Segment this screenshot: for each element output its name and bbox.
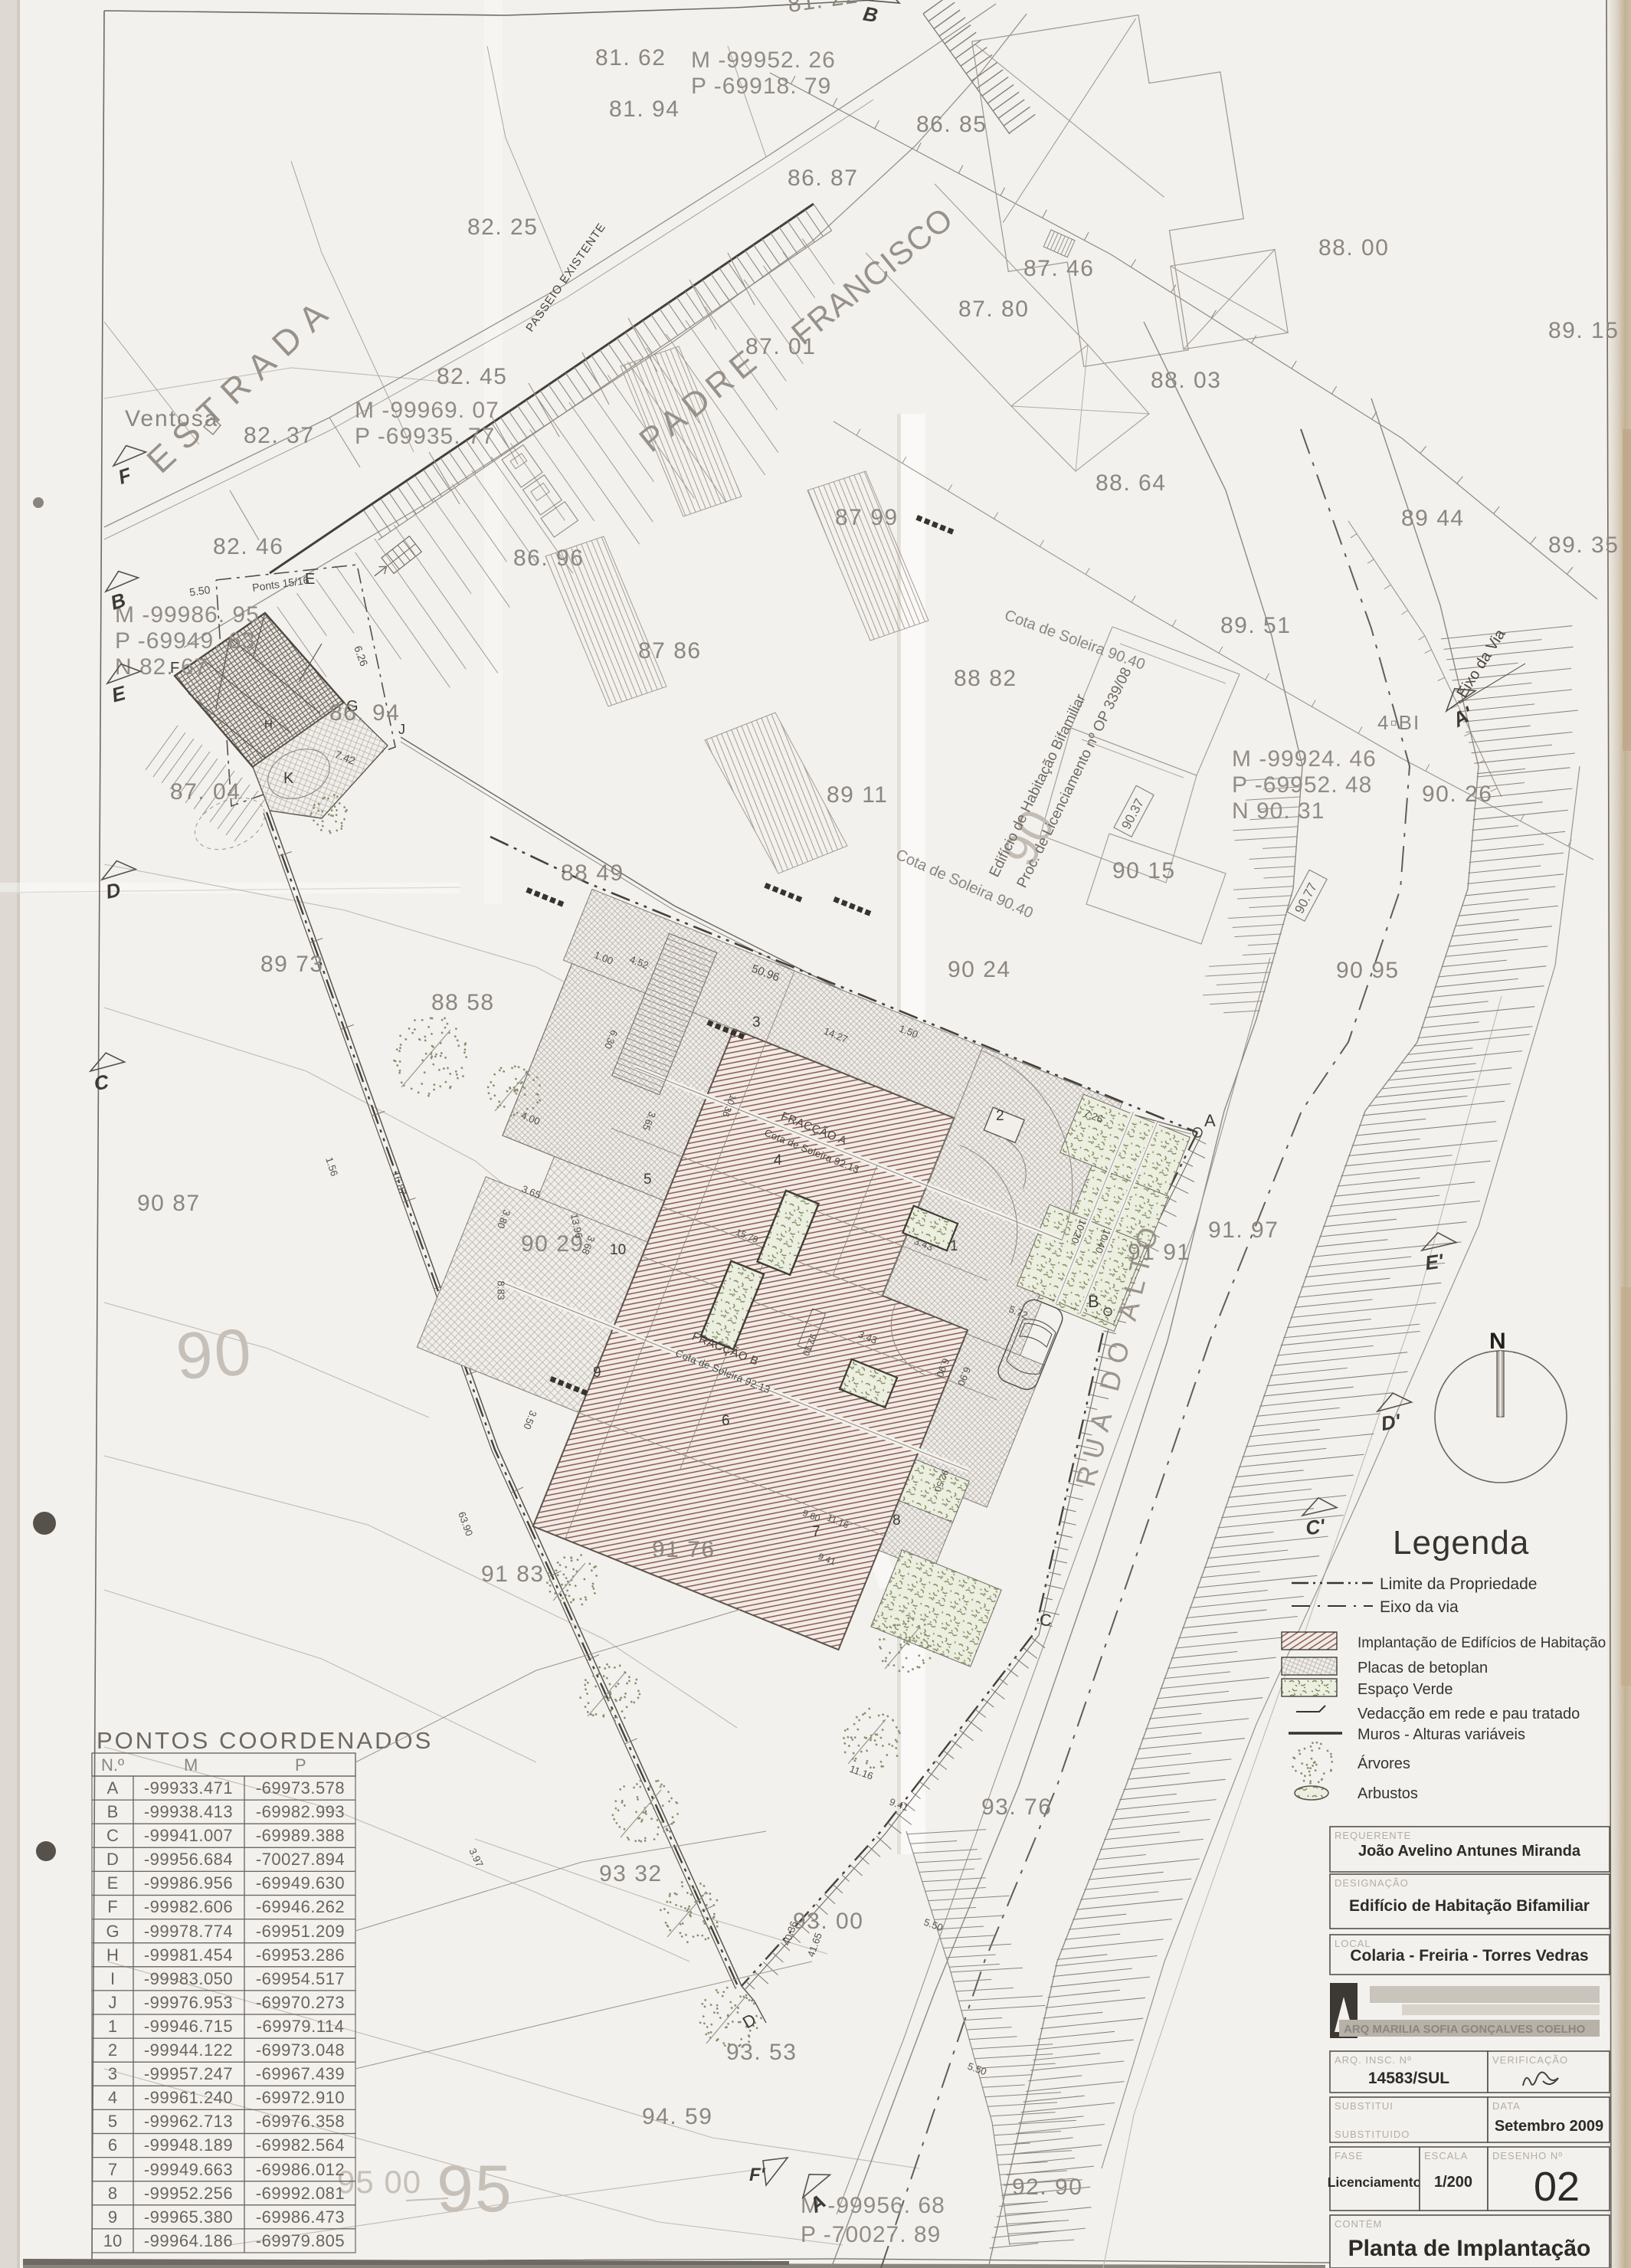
svg-text:90 24: 90 24	[948, 957, 1011, 982]
svg-text:-70027.894: -70027.894	[256, 1850, 345, 1869]
svg-text:P -70027. 89: P -70027. 89	[801, 2222, 941, 2247]
svg-text:93 32: 93 32	[599, 1861, 663, 1886]
svg-text:P -69918. 79: P -69918. 79	[691, 74, 831, 99]
svg-text:ARQ. INSC. Nº: ARQ. INSC. Nº	[1335, 2054, 1412, 2066]
svg-text:-69982.993: -69982.993	[256, 1802, 345, 1821]
svg-text:90. 26: 90. 26	[1422, 782, 1492, 807]
svg-text:Legenda: Legenda	[1393, 1524, 1529, 1562]
svg-text:P -69949. 63: P -69949. 63	[115, 628, 255, 654]
svg-text:DESIGNAÇÃO: DESIGNAÇÃO	[1335, 1877, 1409, 1889]
svg-text:A: A	[1204, 1111, 1216, 1130]
svg-text:93. 76: 93. 76	[981, 1794, 1052, 1820]
svg-text:VERIFICAÇÃO: VERIFICAÇÃO	[1492, 2054, 1568, 2066]
svg-text:3: 3	[752, 1014, 761, 1031]
svg-text:-99949.663: -99949.663	[144, 2160, 233, 2179]
svg-text:Colaria - Freiria - Torres Ved: Colaria - Freiria - Torres Vedras	[1350, 1947, 1588, 1965]
svg-text:FASE: FASE	[1335, 2150, 1363, 2161]
svg-text:Muros - Alturas variáveis: Muros - Alturas variáveis	[1358, 1726, 1525, 1743]
svg-text:4: 4	[774, 1152, 782, 1168]
svg-text:86. 96: 86. 96	[513, 546, 584, 571]
svg-text:I: I	[110, 1969, 115, 1988]
svg-text:B: B	[1088, 1292, 1099, 1311]
svg-text:9: 9	[108, 2207, 117, 2227]
svg-text:-99982.606: -99982.606	[144, 1897, 233, 1916]
svg-text:14583/SUL: 14583/SUL	[1368, 2070, 1449, 2087]
svg-text:91. 97: 91. 97	[1208, 1218, 1279, 1243]
svg-text:M -99924. 46: M -99924. 46	[1232, 746, 1377, 772]
svg-text:Arbustos: Arbustos	[1358, 1785, 1418, 1802]
svg-text:N 90. 31: N 90. 31	[1232, 798, 1325, 824]
svg-text:DESENHO Nº: DESENHO Nº	[1492, 2150, 1563, 2161]
svg-text:-69986.012: -69986.012	[256, 2160, 345, 2179]
svg-text:-69992.081: -69992.081	[256, 2184, 345, 2203]
svg-text:Planta de Implantação: Planta de Implantação	[1348, 2236, 1591, 2261]
svg-text:N: N	[1489, 1329, 1506, 1354]
svg-text:8: 8	[108, 2184, 117, 2203]
svg-text:88. 64: 88. 64	[1096, 470, 1166, 496]
svg-text:90: 90	[174, 1315, 255, 1394]
svg-text:86. 87: 86. 87	[788, 166, 858, 191]
svg-text:82. 37: 82. 37	[244, 423, 314, 448]
svg-text:82. 25: 82. 25	[467, 215, 538, 240]
svg-text:89 44: 89 44	[1401, 506, 1465, 531]
svg-text:Eixo da via: Eixo da via	[1380, 1598, 1459, 1616]
svg-text:-69989.388: -69989.388	[256, 1826, 345, 1845]
svg-text:P: P	[295, 1755, 306, 1775]
svg-text:88. 03: 88. 03	[1151, 368, 1221, 393]
svg-text:N.º: N.º	[101, 1755, 124, 1775]
svg-text:M -99952. 26: M -99952. 26	[691, 48, 836, 73]
svg-text:Edifício de Habitação Bifamili: Edifício de Habitação Bifamiliar	[1349, 1897, 1590, 1915]
svg-text:Implantação de Edifícios de Ha: Implantação de Edifícios de Habitação	[1358, 1635, 1606, 1651]
svg-text:1: 1	[108, 2017, 117, 2036]
svg-text:REQUERENTE: REQUERENTE	[1335, 1830, 1411, 1841]
svg-text:8.83: 8.83	[496, 1280, 507, 1300]
svg-text:82. 46: 82. 46	[213, 534, 283, 559]
svg-text:94. 59: 94. 59	[642, 2104, 712, 2129]
svg-text:2: 2	[996, 1108, 1004, 1124]
svg-text:M -99986. 95: M -99986. 95	[115, 602, 260, 628]
svg-text:CONTÉM: CONTÉM	[1335, 2218, 1382, 2230]
svg-text:P -69952. 48: P -69952. 48	[1232, 772, 1372, 798]
svg-text:-99961.240: -99961.240	[144, 2088, 233, 2107]
svg-text:A: A	[107, 1778, 119, 1798]
svg-text:93. 00: 93. 00	[793, 1909, 863, 1934]
svg-text:H: H	[106, 1945, 119, 1965]
svg-text:Setembro 2009: Setembro 2009	[1495, 2118, 1603, 2135]
svg-text:K: K	[283, 770, 294, 787]
svg-text:J: J	[109, 1993, 117, 2012]
svg-text:-99976.953: -99976.953	[144, 1993, 233, 2012]
svg-text:-69967.439: -69967.439	[256, 2064, 345, 2083]
svg-text:DATA: DATA	[1492, 2100, 1521, 2112]
svg-text:5: 5	[108, 2112, 117, 2131]
svg-text:89 73: 89 73	[260, 952, 324, 977]
svg-text:-69953.286: -69953.286	[256, 1945, 345, 1965]
svg-text:-99964.186: -99964.186	[144, 2231, 233, 2250]
svg-text:-99938.413: -99938.413	[144, 1802, 233, 1821]
svg-text:-99952.256: -99952.256	[144, 2184, 233, 2203]
svg-text:-99957.247: -99957.247	[144, 2064, 233, 2083]
svg-text:87. 80: 87. 80	[958, 297, 1029, 322]
svg-text:-69979.114: -69979.114	[257, 2017, 345, 2036]
svg-text:4: 4	[108, 2088, 117, 2107]
svg-text:95: 95	[437, 2152, 513, 2226]
svg-text:SUBSTITUI: SUBSTITUI	[1335, 2100, 1394, 2112]
svg-text:10: 10	[103, 2231, 122, 2250]
svg-text:89. 51: 89. 51	[1220, 613, 1291, 638]
svg-text:81. 62: 81. 62	[595, 45, 666, 70]
svg-text:8: 8	[892, 1513, 901, 1529]
svg-text:91 83: 91 83	[481, 1562, 545, 1587]
svg-text:Espaço Verde: Espaço Verde	[1358, 1681, 1453, 1698]
svg-text:89. 35: 89. 35	[1548, 533, 1619, 558]
svg-text:7: 7	[812, 1524, 820, 1540]
svg-text:88 49: 88 49	[561, 860, 624, 886]
svg-text:89. 15: 89. 15	[1548, 318, 1619, 343]
svg-text:86. 94: 86. 94	[329, 700, 400, 726]
svg-text:SUBSTITUIDO: SUBSTITUIDO	[1335, 2129, 1410, 2140]
svg-text:91 91: 91 91	[1128, 1240, 1191, 1265]
svg-text:-99983.050: -99983.050	[144, 1969, 233, 1988]
svg-text:M -99969. 07: M -99969. 07	[355, 398, 499, 423]
svg-text:-99941.007: -99941.007	[144, 1826, 233, 1845]
svg-text:-69986.473: -69986.473	[256, 2207, 345, 2227]
svg-text:88. 00: 88. 00	[1318, 235, 1389, 261]
svg-text:-69951.209: -69951.209	[256, 1922, 345, 1941]
svg-text:C': C'	[1304, 1514, 1327, 1539]
svg-text:-69946.262: -69946.262	[256, 1897, 345, 1916]
svg-text:7: 7	[108, 2160, 117, 2179]
svg-text:90 87: 90 87	[137, 1191, 201, 1216]
svg-text:9: 9	[593, 1365, 601, 1381]
svg-text:P -69935. 77: P -69935. 77	[355, 424, 495, 449]
svg-text:F': F'	[749, 2165, 766, 2185]
svg-text:-69982.564: -69982.564	[256, 2135, 345, 2155]
svg-text:2: 2	[108, 2040, 117, 2060]
svg-text:-99978.774: -99978.774	[144, 1922, 233, 1941]
svg-text:6: 6	[108, 2135, 117, 2155]
svg-text:Licenciamento: Licenciamento	[1328, 2175, 1422, 2190]
svg-text:-99948.189: -99948.189	[144, 2135, 233, 2155]
svg-text:88 82: 88 82	[954, 666, 1017, 691]
svg-text:-99986.956: -99986.956	[144, 1873, 233, 1893]
svg-text:-99956.684: -99956.684	[144, 1850, 233, 1869]
svg-text:88 58: 88 58	[431, 990, 495, 1015]
svg-text:Árvores: Árvores	[1358, 1755, 1410, 1772]
svg-text:1/200: 1/200	[1434, 2174, 1472, 2191]
svg-text:89 11: 89 11	[827, 782, 888, 808]
svg-text:81. 94: 81. 94	[609, 97, 680, 122]
svg-text:Limite da Propriedade: Limite da Propriedade	[1380, 1575, 1537, 1593]
svg-text:M: M	[184, 1755, 198, 1775]
svg-text:91 76: 91 76	[652, 1537, 716, 1562]
svg-text:-69949.630: -69949.630	[256, 1873, 345, 1893]
svg-text:82. 45: 82. 45	[437, 364, 507, 389]
svg-text:-99933.471: -99933.471	[144, 1778, 233, 1798]
svg-text:10: 10	[610, 1242, 626, 1258]
svg-text:-69972.910: -69972.910	[256, 2088, 345, 2107]
svg-text:-69979.805: -69979.805	[256, 2231, 345, 2250]
svg-text:C: C	[106, 1826, 119, 1845]
svg-text:D: D	[106, 1850, 119, 1869]
svg-text:86. 85: 86. 85	[916, 112, 987, 137]
svg-text:-99944.122: -99944.122	[144, 2040, 233, 2060]
svg-text:Vedacção em rede e pau tratado: Vedacção em rede e pau tratado	[1358, 1706, 1580, 1722]
svg-text:F: F	[107, 1897, 117, 1916]
svg-text:87 86: 87 86	[638, 638, 702, 664]
svg-text:-69973.578: -69973.578	[256, 1778, 345, 1798]
svg-text:H: H	[264, 718, 273, 731]
svg-text:João Avelino Antunes Miranda: João Avelino Antunes Miranda	[1358, 1843, 1581, 1860]
svg-text:-69973.048: -69973.048	[256, 2040, 345, 2060]
svg-text:4▫BI: 4▫BI	[1377, 711, 1420, 734]
svg-text:95 00: 95 00	[337, 2164, 421, 2200]
svg-text:PONTOS COORDENADOS: PONTOS COORDENADOS	[97, 1727, 433, 1754]
svg-text:ESCALA: ESCALA	[1424, 2150, 1468, 2161]
svg-text:87. 01: 87. 01	[745, 334, 816, 359]
svg-text:-99962.713: -99962.713	[144, 2112, 233, 2131]
svg-text:5: 5	[644, 1172, 652, 1188]
svg-text:-99946.715: -99946.715	[144, 2017, 233, 2036]
svg-text:87. 46: 87. 46	[1023, 256, 1094, 281]
svg-text:87 99: 87 99	[835, 505, 899, 530]
svg-text:ARQ MARILIA SOFIA GONÇALVES CO: ARQ MARILIA SOFIA GONÇALVES COELHO	[1344, 2023, 1586, 2036]
svg-text:E: E	[107, 1873, 119, 1893]
svg-text:02: 02	[1534, 2164, 1580, 2210]
svg-text:C: C	[1040, 1611, 1052, 1630]
svg-text:-69970.273: -69970.273	[256, 1993, 345, 2012]
svg-text:6: 6	[722, 1413, 730, 1429]
svg-text:93. 53: 93. 53	[726, 2040, 797, 2065]
svg-text:-69954.517: -69954.517	[256, 1969, 345, 1988]
svg-text:90 95: 90 95	[1336, 958, 1400, 983]
svg-text:87. 04: 87. 04	[170, 779, 241, 805]
svg-text:3: 3	[108, 2064, 117, 2083]
svg-text:Placas de betoplan: Placas de betoplan	[1358, 1660, 1488, 1676]
svg-text:1: 1	[950, 1238, 958, 1254]
svg-text:-69976.358: -69976.358	[256, 2112, 345, 2131]
svg-text:-99981.454: -99981.454	[144, 1945, 233, 1965]
svg-text:-99965.380: -99965.380	[144, 2207, 233, 2227]
svg-text:90 15: 90 15	[1112, 858, 1176, 883]
svg-text:B: B	[107, 1802, 119, 1821]
svg-text:G: G	[106, 1922, 119, 1941]
svg-text:92. 90: 92. 90	[1012, 2175, 1082, 2200]
